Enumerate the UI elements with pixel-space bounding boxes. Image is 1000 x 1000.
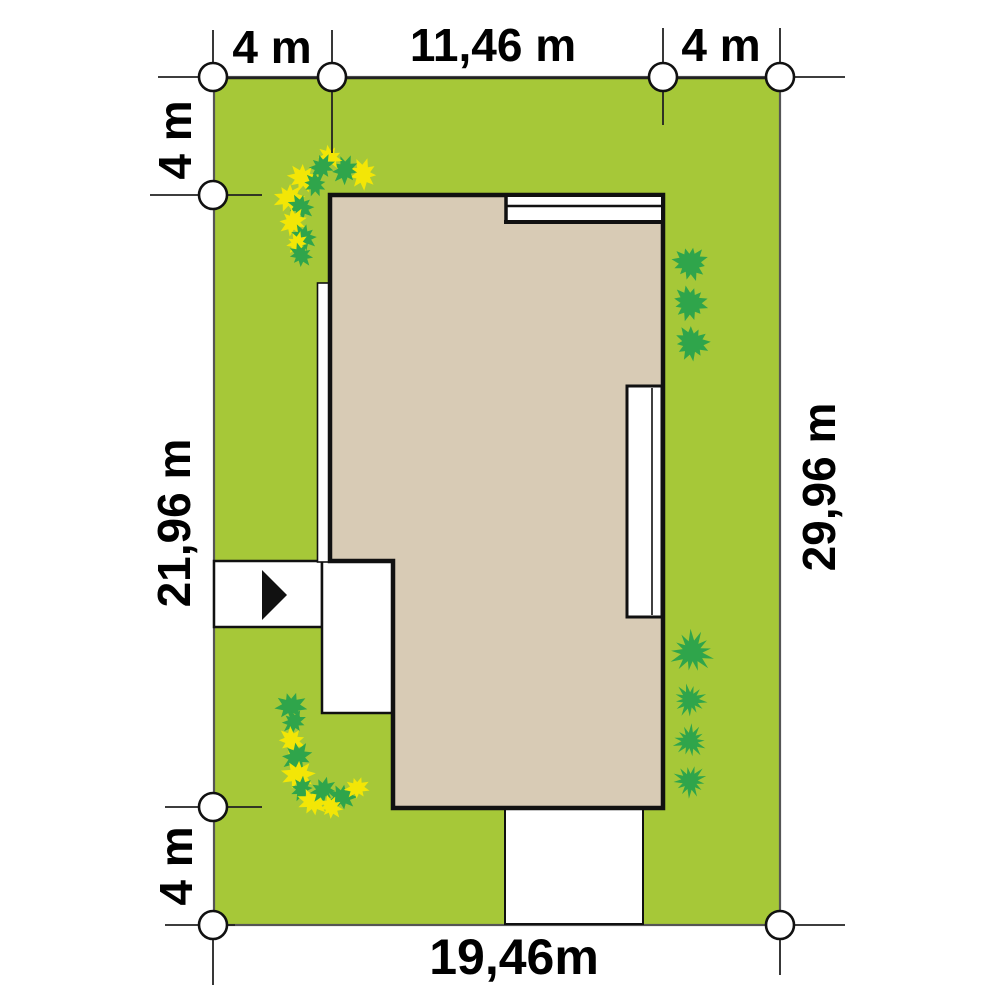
survey-marker: [199, 63, 227, 91]
roof-panel-white: [506, 197, 661, 221]
survey-marker: [199, 181, 227, 209]
survey-marker: [199, 793, 227, 821]
survey-marker: [766, 911, 794, 939]
dimension-label-top-center: 11,46 m: [410, 19, 576, 71]
dimension-label-bottom: 19,46m: [429, 929, 599, 985]
site-plan-canvas: 4 m 11,46 m 4 m 4 m 21,96 m 4 m 29,96 m …: [0, 0, 1000, 1000]
rear-terrace: [505, 808, 643, 924]
entrance-pad: [322, 561, 393, 713]
dimension-label-top-left: 4 m: [232, 21, 311, 73]
roof-panel-notch: [504, 195, 663, 222]
survey-marker: [318, 63, 346, 91]
dimension-label-top-right: 4 m: [681, 19, 760, 71]
site-plan-page: 4 m 11,46 m 4 m 4 m 21,96 m 4 m 29,96 m …: [0, 0, 1000, 1000]
side-terrace: [627, 386, 662, 617]
dimension-label-left-middle: 21,96 m: [148, 439, 200, 608]
survey-marker: [649, 63, 677, 91]
dimension-label-right-side: 29,96 m: [793, 403, 845, 572]
side-terrace-white: [627, 386, 662, 617]
dimension-label-left-upper: 4 m: [149, 100, 201, 179]
dimension-label-left-lower: 4 m: [150, 826, 202, 905]
survey-marker: [766, 63, 794, 91]
survey-marker: [199, 911, 227, 939]
